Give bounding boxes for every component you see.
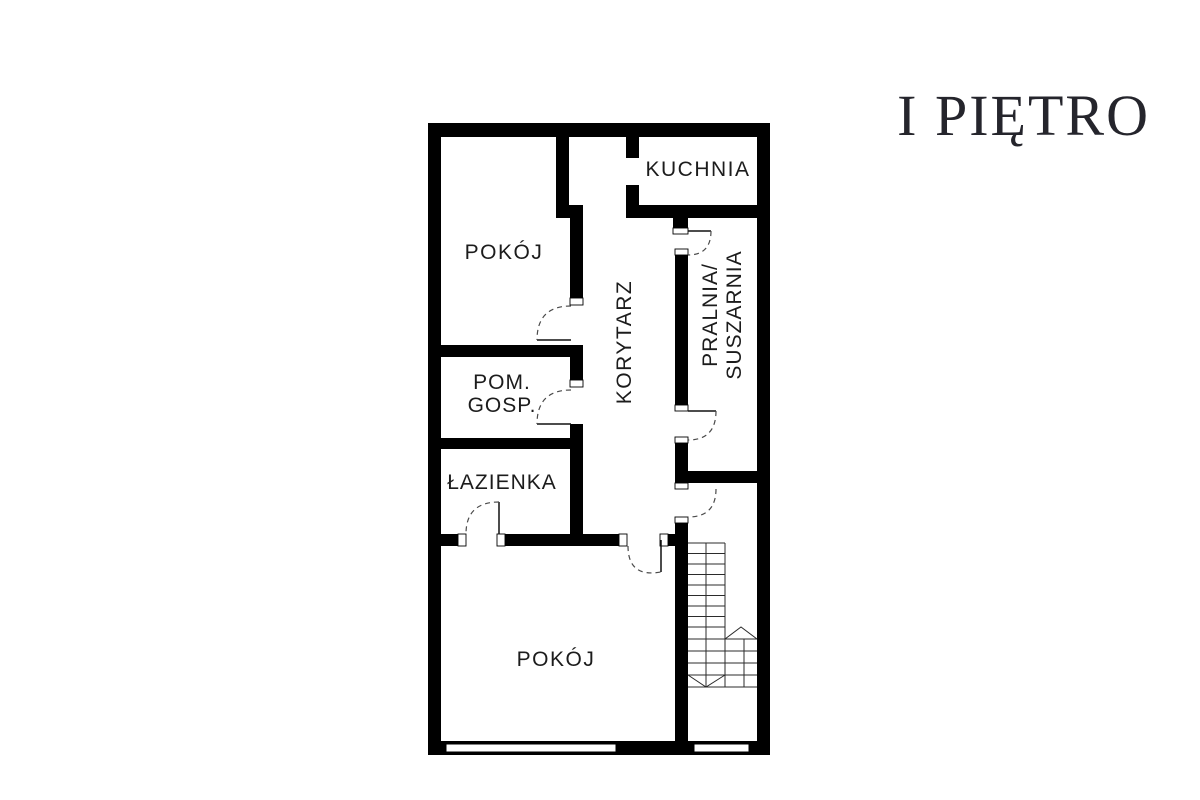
door-jamb: [675, 517, 688, 523]
wall-segment: [428, 123, 770, 137]
door-arc: [537, 390, 571, 424]
wall-segment: [505, 534, 619, 546]
door-arc: [688, 489, 716, 517]
door-arc: [466, 502, 499, 534]
wall-segment: [570, 424, 583, 438]
door-jamb: [673, 228, 688, 234]
door-jamb: [570, 380, 583, 387]
wall-segment: [675, 523, 688, 743]
room-label-korytarz: KORYTARZ: [613, 280, 636, 404]
room-label-pralnia-line1: PRALNIA/: [699, 263, 722, 367]
door-jamb: [675, 483, 688, 489]
wall-segment: [675, 471, 770, 483]
door-jamb: [458, 534, 466, 546]
room-label-pralnia-line2: SUSZARNIA: [723, 250, 746, 379]
room-label-pom-gosp-line2: GOSP.: [468, 394, 537, 417]
page-title: I PIĘTRO: [897, 83, 1150, 148]
door-arc: [537, 306, 571, 340]
door-jamb: [675, 249, 688, 255]
room-label-pom-gosp-line1: POM.: [473, 371, 531, 394]
wall-segment: [570, 449, 583, 534]
walls: [428, 123, 770, 755]
door-arc: [628, 546, 661, 573]
windows: [446, 744, 749, 752]
room-labels: KUCHNIA POKÓJ KORYTARZ PRALNIA/ SUSZARNI…: [447, 158, 750, 671]
room-label-kuchnia: KUCHNIA: [645, 158, 750, 181]
door-jamb: [497, 534, 505, 546]
window: [694, 744, 749, 752]
wall-segment: [428, 534, 458, 546]
door-jamb: [675, 405, 688, 411]
wall-segment: [556, 205, 583, 218]
wall-segment: [675, 255, 688, 405]
window: [446, 744, 616, 752]
stairs-treads-lower: [688, 639, 757, 687]
wall-segment: [556, 137, 569, 212]
stairs-up-chevron: [725, 627, 757, 639]
floor-plan-page: KUCHNIA POKÓJ KORYTARZ PRALNIA/ SUSZARNI…: [0, 0, 1200, 800]
stairs-stringers: [706, 543, 744, 687]
wall-segment: [570, 218, 583, 298]
room-label-lazienka: ŁAZIENKA: [447, 471, 557, 494]
door-arc: [688, 231, 711, 255]
wall-segment: [428, 345, 583, 357]
door-jamb: [675, 437, 688, 443]
room-label-pokoj-bottom: POKÓJ: [517, 648, 596, 671]
wall-segment: [428, 438, 583, 449]
door-jamb: [619, 534, 627, 546]
wall-segment: [675, 443, 688, 472]
room-label-pokoj-top: POKÓJ: [465, 241, 544, 264]
wall-segment: [570, 357, 583, 380]
wall-segment: [626, 205, 770, 218]
wall-segment: [626, 137, 639, 158]
door-jamb: [570, 298, 583, 305]
wall-segment: [673, 218, 688, 228]
floor-plan-drawing: KUCHNIA POKÓJ KORYTARZ PRALNIA/ SUSZARNI…: [0, 0, 1200, 800]
door-arc: [688, 411, 716, 440]
staircase: [688, 543, 757, 687]
